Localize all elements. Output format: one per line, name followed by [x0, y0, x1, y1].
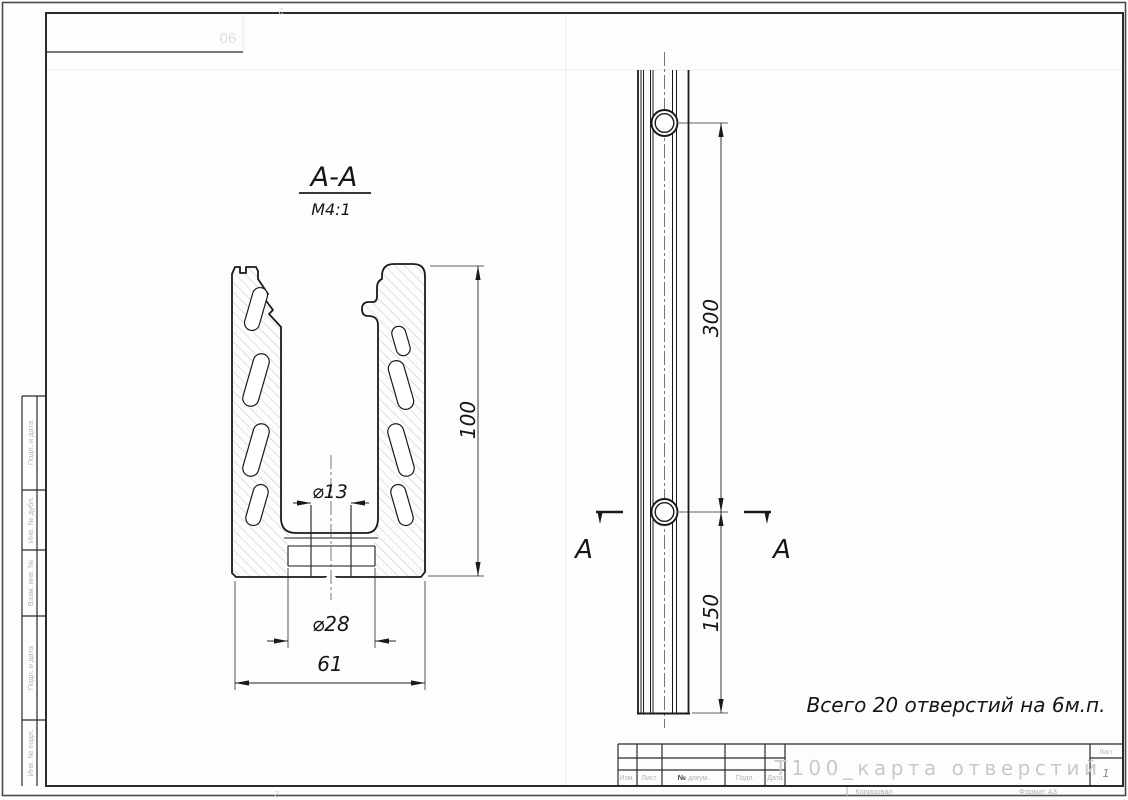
dim-300-group: 300 [679, 123, 728, 512]
dim-dia13: ⌀13 [312, 481, 348, 503]
section-view: А-А М4:1 [232, 162, 484, 690]
cut-arrow-left [598, 513, 603, 524]
stamp-inv-podl: Инв. № подл. [26, 730, 35, 777]
left-stamp-column: Подп. и дата Инв. № дубл. Взам. инв. № П… [22, 396, 46, 786]
drawing-sheet: 90 2 2 Подп. и дата Инв. № дубл. Взам. и… [0, 0, 1128, 800]
bleed-through-page-bottom: 2 [274, 789, 279, 799]
kopiroval-label: Копировал [855, 787, 893, 796]
col-izm: Изм. [620, 775, 635, 782]
format-label: Формат А3 [1019, 787, 1057, 796]
title-block: Изм. Лист № докум. Подп. Дата Т100_карта… [618, 744, 1123, 796]
stamp-podp-data-2: Подп. и дата [26, 645, 35, 690]
dim-dia13-group: ⌀13 [293, 481, 369, 506]
bleed-through-text: 90 [220, 29, 237, 46]
dim-100: 100 [456, 401, 480, 439]
col-list: Лист [641, 775, 657, 782]
side-view: 300 150 А А [573, 52, 791, 728]
sheet-label: Лист [1099, 749, 1113, 756]
section-scale: М4:1 [311, 200, 351, 219]
dim-dia28: ⌀28 [312, 612, 350, 636]
section-title: А-А [309, 162, 358, 193]
page-border [3, 3, 1126, 796]
dim-150: 150 [699, 594, 723, 632]
section-cut-marks: А А [573, 512, 791, 565]
doc-title: Т100_карта отверстий [773, 756, 1101, 780]
cut-label-left: А [573, 535, 593, 565]
dim-300: 300 [699, 299, 723, 337]
col-dokum: докум. [688, 775, 709, 782]
stamp-podp-data-1: Подп. и дата [26, 420, 35, 465]
cut-label-right: А [771, 535, 791, 565]
bleed-through-page-top: 2 [278, 6, 283, 16]
bottom-block-clear [289, 534, 374, 576]
dim-61: 61 [317, 652, 342, 676]
drawing-canvas: 90 2 2 Подп. и дата Инв. № дубл. Взам. и… [0, 0, 1128, 800]
page-frame [3, 3, 1126, 796]
stamp-inv-dubl: Инв. № дубл. [26, 497, 35, 543]
dim-150-group: 150 [692, 512, 728, 713]
bar-edges [637, 70, 690, 714]
cut-arrow-right [765, 513, 770, 524]
col-num-sign: № [678, 773, 686, 782]
inner-frame [46, 13, 1123, 786]
col-podp: Подп. [736, 775, 755, 782]
sheet-number: 1 [1103, 767, 1110, 780]
dim-100-group: 100 [428, 266, 484, 576]
note-text: Всего 20 отверстий на 6м.п. [807, 693, 1106, 717]
stamp-vzam-inv: Взам. инв. № [26, 560, 35, 606]
dim-dia28-group: ⌀28 [267, 568, 396, 648]
